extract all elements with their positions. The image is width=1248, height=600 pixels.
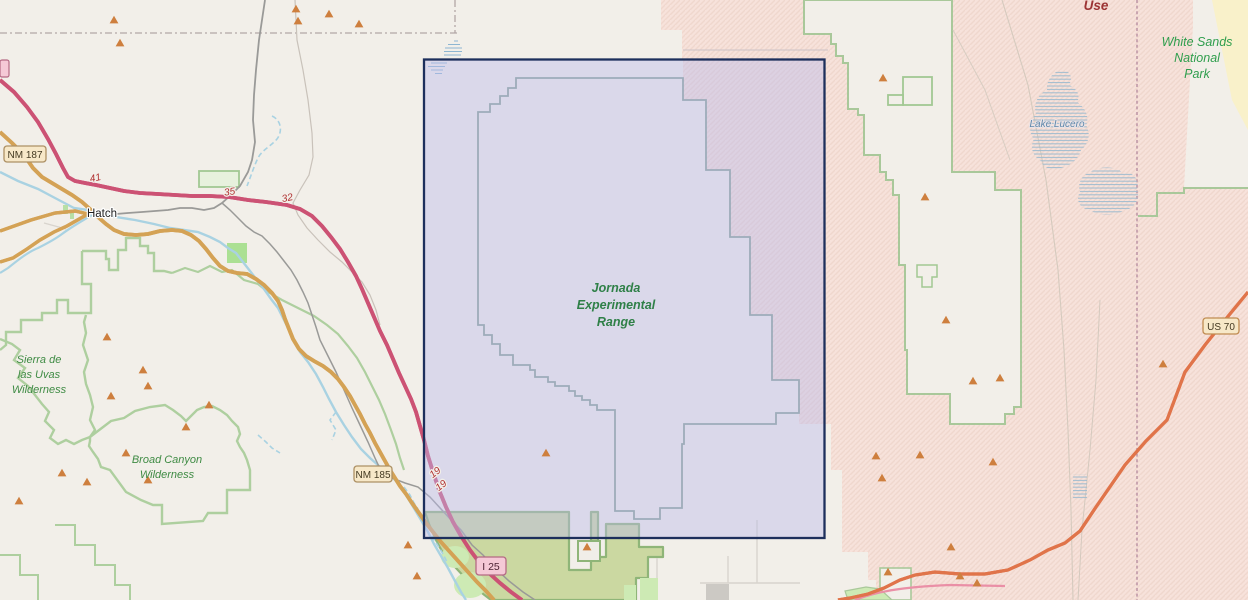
- svg-text:35: 35: [223, 186, 236, 199]
- svg-text:Lake Lucero: Lake Lucero: [1029, 119, 1084, 130]
- svg-text:Wilderness: Wilderness: [12, 384, 67, 396]
- svg-text:I 25: I 25: [482, 561, 500, 573]
- svg-text:Use: Use: [1084, 0, 1109, 13]
- svg-text:White Sands: White Sands: [1162, 35, 1233, 49]
- svg-text:Wilderness: Wilderness: [140, 469, 195, 481]
- svg-text:Experimental: Experimental: [577, 298, 656, 312]
- svg-text:US 70: US 70: [1207, 322, 1235, 333]
- svg-text:Range: Range: [597, 315, 635, 329]
- svg-text:Jornada: Jornada: [592, 281, 641, 295]
- svg-text:NM 185: NM 185: [355, 470, 390, 481]
- svg-text:las Uvas: las Uvas: [18, 369, 61, 381]
- svg-text:Hatch: Hatch: [87, 208, 117, 220]
- svg-text:Sierra de: Sierra de: [17, 354, 62, 366]
- svg-text:NM 187: NM 187: [7, 150, 42, 161]
- svg-text:41: 41: [89, 172, 102, 185]
- svg-text:National: National: [1174, 51, 1221, 65]
- svg-text:Park: Park: [1184, 67, 1210, 81]
- svg-text:Broad Canyon: Broad Canyon: [132, 454, 202, 466]
